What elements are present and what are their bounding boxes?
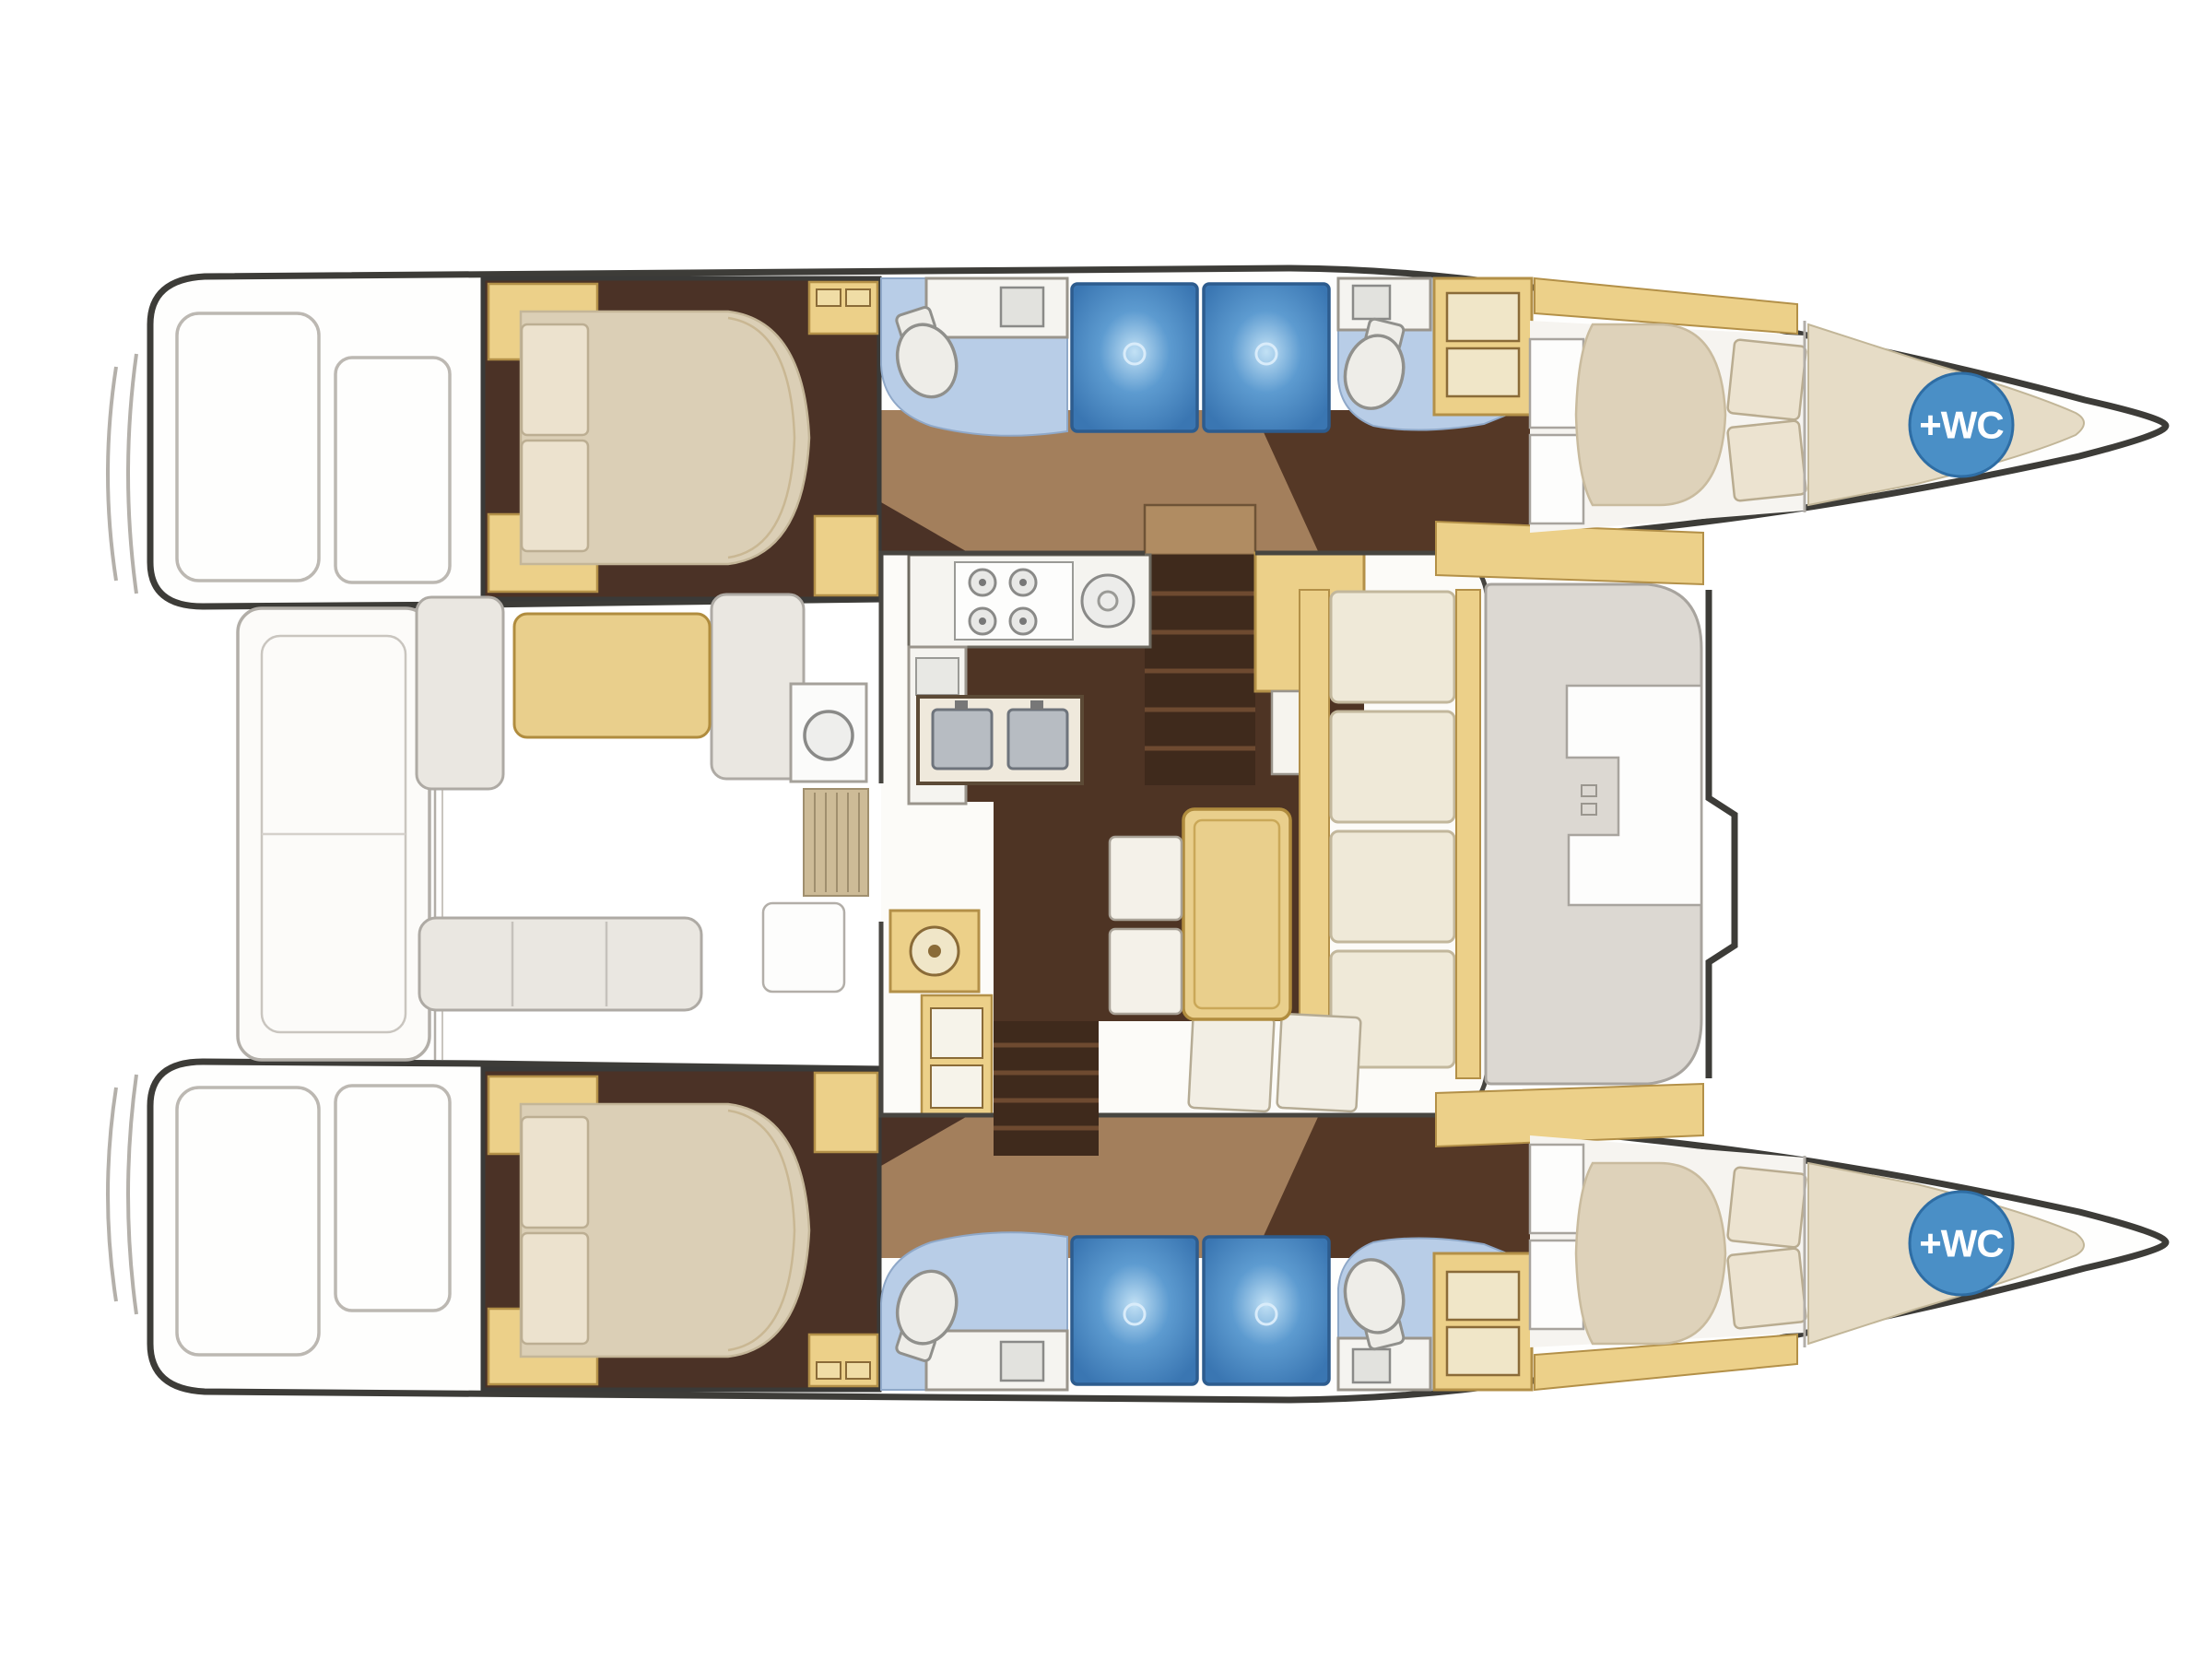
settee-cushion — [1331, 592, 1454, 702]
wardrobe — [1530, 435, 1583, 523]
sink-basin-icon — [1008, 710, 1067, 769]
transom-step-line — [108, 1088, 116, 1301]
bench-cushion — [1188, 1014, 1274, 1111]
drawer-icon — [817, 1362, 841, 1379]
counter-item — [916, 658, 959, 695]
double-bed — [1576, 1163, 1725, 1344]
vanity-sink-icon — [1001, 1342, 1043, 1381]
stair-landing — [1145, 505, 1255, 555]
faucet-icon — [955, 700, 968, 710]
stairs-starboard — [994, 1021, 1099, 1156]
shower-stall — [1204, 1237, 1329, 1384]
pillow-icon — [1727, 339, 1806, 420]
wc-badge-label: +WC — [1919, 404, 2004, 447]
bow-wc-badge-starboard: +WC — [1910, 1192, 2013, 1295]
drawer-icon — [1447, 293, 1519, 341]
cabinet-door — [931, 1065, 982, 1108]
pillow-icon — [522, 324, 588, 435]
pillow-icon — [522, 1117, 588, 1228]
forward-cockpit — [1486, 584, 1735, 1084]
settee-back-trim — [1456, 590, 1480, 1078]
post-center — [928, 945, 941, 958]
shower-stall — [1204, 284, 1329, 431]
aft-cabin-starboard — [483, 1069, 879, 1390]
pillow-icon — [522, 1233, 588, 1344]
drawer-icon — [846, 1362, 870, 1379]
wc-badge-label: +WC — [1919, 1222, 2004, 1265]
drawer-icon — [1447, 1327, 1519, 1375]
chair-cushion — [1110, 929, 1182, 1014]
drawer-icon — [1447, 348, 1519, 396]
dinette-table — [1183, 809, 1290, 1019]
transom-step-line — [128, 354, 136, 594]
drawer-icon — [1447, 1272, 1519, 1320]
drawer-icon — [846, 289, 870, 306]
wardrobe — [1530, 1145, 1583, 1233]
cockpit-bench — [417, 597, 503, 789]
catamaran-floor-plan: +WC +WC — [0, 0, 2212, 1658]
side-deck-strip — [1436, 522, 1703, 584]
cockpit-table — [514, 614, 710, 737]
cabinet — [815, 516, 877, 595]
cabinet — [815, 1073, 877, 1152]
cockpit-bench — [419, 918, 701, 1010]
vanity-sink-icon — [1001, 288, 1043, 326]
pillow-icon — [1727, 1248, 1806, 1329]
deck-linework — [108, 354, 136, 1314]
appliance-round-door-icon — [805, 711, 853, 759]
cabinet-door — [931, 1008, 982, 1058]
aft-cabin-port — [483, 278, 879, 599]
pillow-icon — [522, 441, 588, 551]
stairs-port — [1145, 505, 1255, 785]
stair-well — [994, 1021, 1099, 1156]
sink-basin-icon — [933, 710, 992, 769]
double-bed — [1576, 324, 1725, 505]
vanity-sink-icon — [1353, 1349, 1390, 1382]
aft-cockpit — [417, 594, 868, 1010]
side-deck-strip — [1436, 1084, 1703, 1146]
bench-cushion — [1277, 1014, 1360, 1111]
forward-crossbeam — [1709, 590, 1735, 1078]
faucet-icon — [1030, 700, 1043, 710]
settee-base — [1300, 590, 1329, 1069]
vanity-counter — [926, 1331, 1067, 1390]
pillow-icon — [1727, 1167, 1806, 1248]
deck-plan-canvas: +WC +WC — [0, 0, 2212, 1658]
heads-port — [881, 278, 1532, 436]
vanity-counter — [926, 278, 1067, 337]
shower-stall — [1072, 1237, 1197, 1384]
round-sink-icon — [1082, 575, 1134, 627]
bow-wc-badge-port: +WC — [1910, 373, 2013, 476]
vanity-sink-icon — [1353, 286, 1390, 319]
chair-cushion — [1110, 837, 1182, 920]
transom-step-line — [128, 1075, 136, 1314]
settee-cushion — [1331, 711, 1454, 822]
drawer-icon — [817, 289, 841, 306]
pillow-icon — [1727, 420, 1806, 501]
transom-step-line — [108, 367, 116, 581]
shower-stall — [1072, 284, 1197, 431]
heads-starboard — [881, 1232, 1532, 1390]
cockpit-locker — [763, 903, 844, 992]
settee-cushion — [1331, 831, 1454, 942]
